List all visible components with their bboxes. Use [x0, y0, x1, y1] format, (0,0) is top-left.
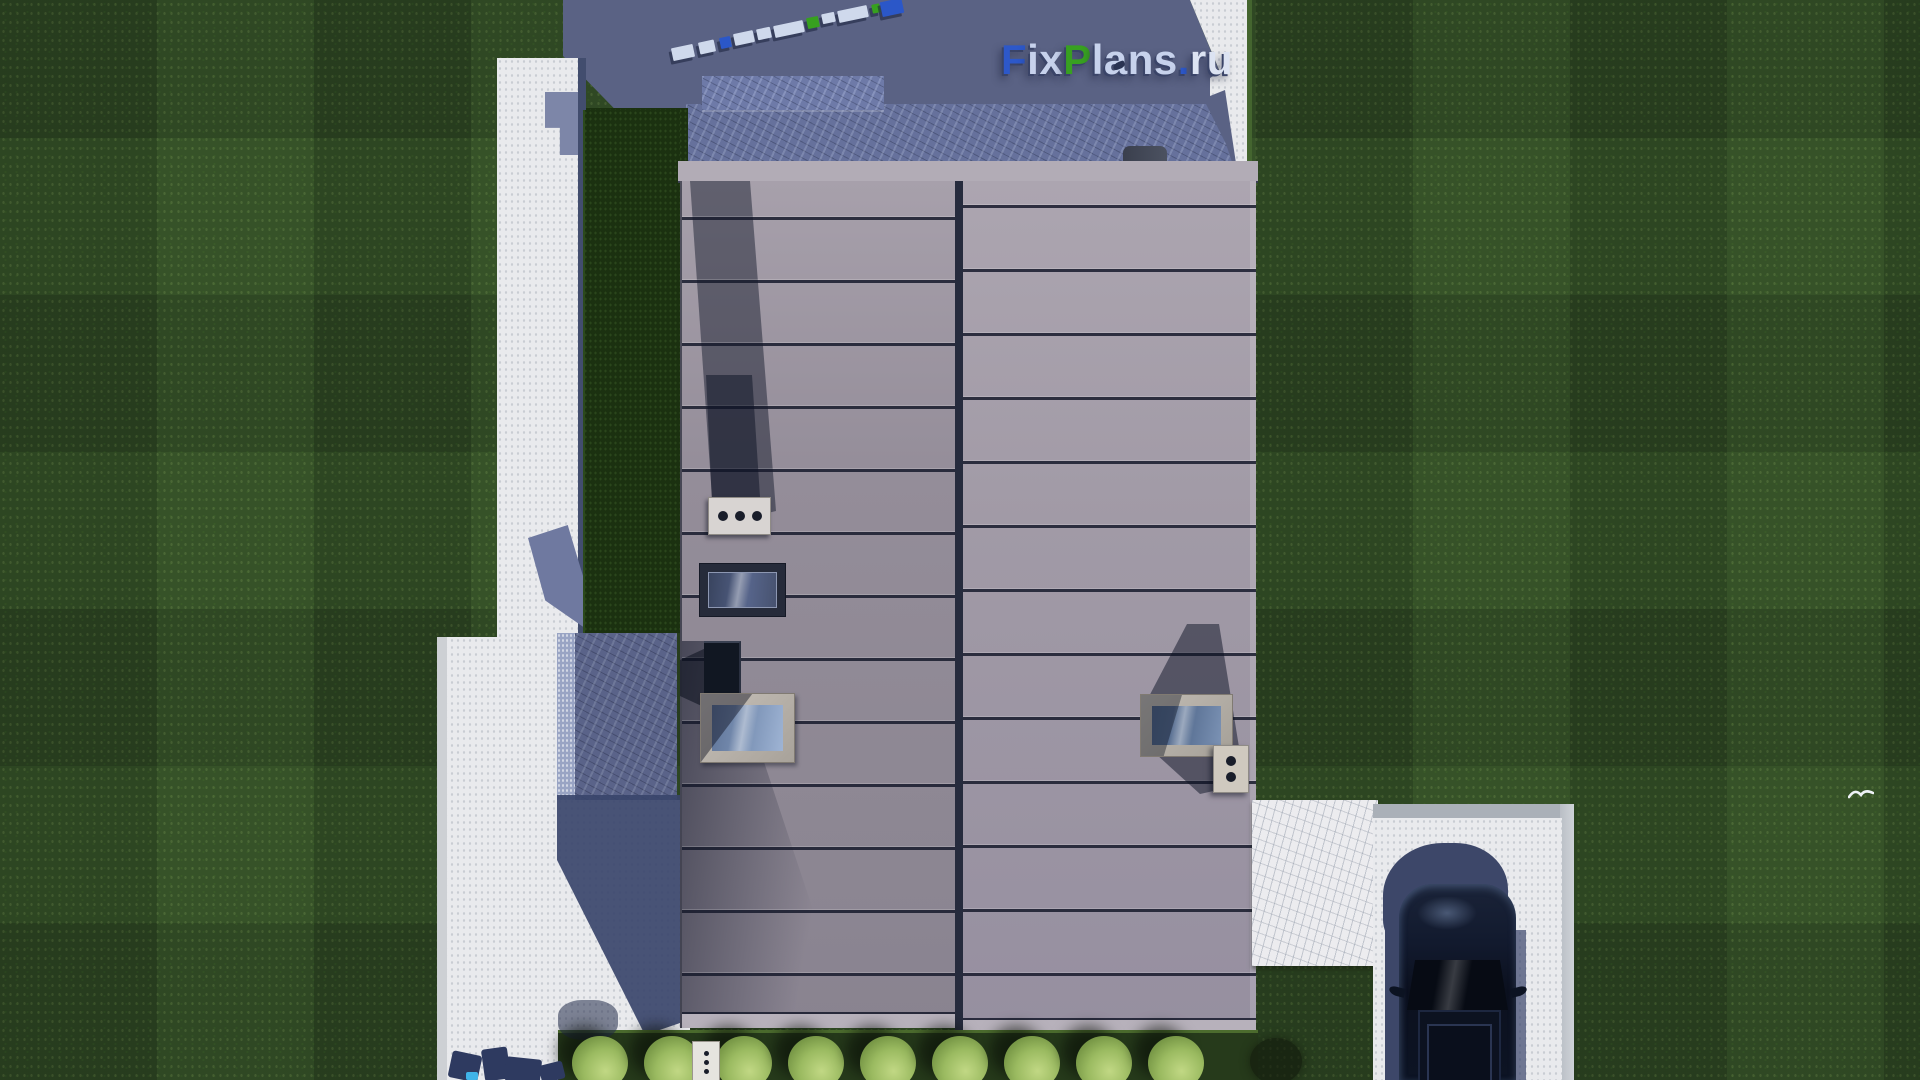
roof-panel-seam [963, 269, 1256, 272]
driveway-curb-top [1373, 804, 1574, 818]
grass-edge-strip [1247, 0, 1252, 170]
terrace-step-strip [557, 633, 575, 800]
roof-eave-left [682, 1014, 957, 1028]
skylight-one [699, 563, 786, 617]
watermark-letter: P [1063, 36, 1092, 83]
roof-panel-seam [682, 847, 957, 850]
vent-hole [704, 1069, 709, 1074]
roof-panel-seam [682, 910, 957, 913]
shrub-bed-shadow [558, 1000, 618, 1040]
car-hood-glint [1417, 896, 1477, 930]
roof-panel-seam [682, 973, 957, 976]
path-curb-line [437, 637, 447, 1080]
roof-ridge-gap [955, 181, 963, 1034]
roof-vent-two-holes [1213, 745, 1249, 793]
watermark-letter: ix [1027, 36, 1063, 83]
watermark-letter: F [1001, 36, 1027, 83]
glass-reflection [709, 573, 776, 607]
roof-panel-seam [963, 845, 1256, 848]
watermark-letter: ru [1190, 36, 1233, 83]
skylight-one-glass [708, 572, 777, 608]
vent-hole [718, 511, 728, 521]
watermark-letter: lans [1092, 36, 1178, 83]
roof-panel-seam [963, 333, 1256, 336]
vent-hole [704, 1060, 709, 1065]
aerial-site-render: FixPlans.ru [0, 0, 1920, 1080]
patio-stone-step [702, 76, 884, 110]
roof-panel-seam [963, 205, 1256, 208]
vent-hole [752, 511, 762, 521]
roof-panel-seam [682, 343, 957, 346]
skylight-two [700, 693, 795, 763]
driveway-curb-right [1560, 804, 1574, 1080]
vent-hole [735, 511, 745, 521]
roof-panel-seam [963, 461, 1256, 464]
chimney [704, 641, 741, 701]
roof-panel-seam [963, 397, 1256, 400]
3d-letter-block [719, 36, 732, 49]
roof-plane-right [963, 181, 1256, 1034]
roof-panel-seam [682, 784, 957, 787]
vent-hole [1226, 772, 1236, 782]
watermark-text: FixPlans.ru [1001, 36, 1233, 84]
car [1399, 884, 1516, 1080]
roof-panel-seam [963, 973, 1256, 976]
hedge-strip [583, 110, 680, 633]
bush-shadow-pocket [1250, 1038, 1302, 1080]
letter-shadow [504, 1056, 542, 1080]
roof-panel-seam [682, 217, 957, 220]
roof-panel-seam [963, 589, 1256, 592]
patio-marble-square [1252, 800, 1378, 966]
windshield-reflection [1407, 960, 1508, 1010]
roof-vent-three-holes [708, 497, 771, 535]
vent-hole [1226, 756, 1236, 766]
watermark-letter: . [1178, 36, 1190, 83]
roof-panel-seam [963, 909, 1256, 912]
vent-hole [704, 1051, 709, 1056]
bottom-letter-accent [466, 1072, 478, 1080]
car-windshield [1407, 960, 1508, 1010]
bird-icon [1848, 786, 1874, 802]
wall-vent-bottom [692, 1041, 720, 1080]
roof-panel-seam [682, 280, 957, 283]
roof-panel-seam [963, 525, 1256, 528]
roof-parapet-top [678, 161, 1258, 183]
terrace-stone-tiles [557, 633, 677, 800]
car-sunroof [1427, 1024, 1492, 1080]
